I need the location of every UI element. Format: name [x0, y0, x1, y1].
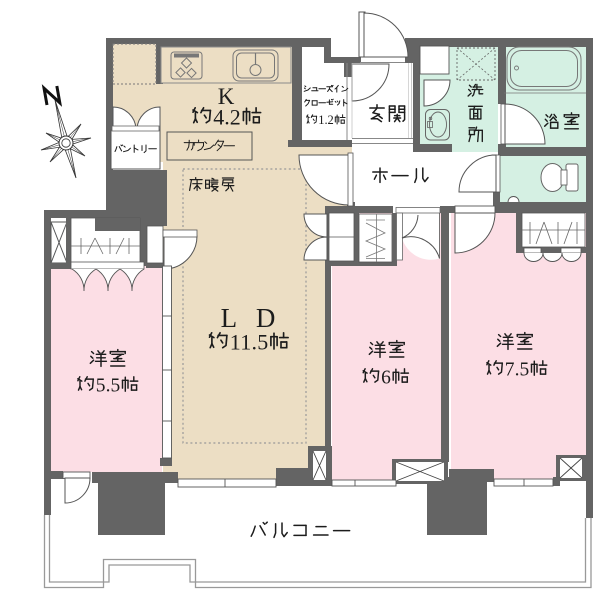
- svg-text:7.5: 7.5: [505, 360, 529, 381]
- svg-text:5.5: 5.5: [96, 376, 120, 397]
- svg-text:11.5: 11.5: [230, 330, 268, 355]
- svg-text:6: 6: [381, 368, 391, 389]
- svg-text:1.2: 1.2: [318, 113, 334, 127]
- svg-text:4.2: 4.2: [213, 105, 241, 130]
